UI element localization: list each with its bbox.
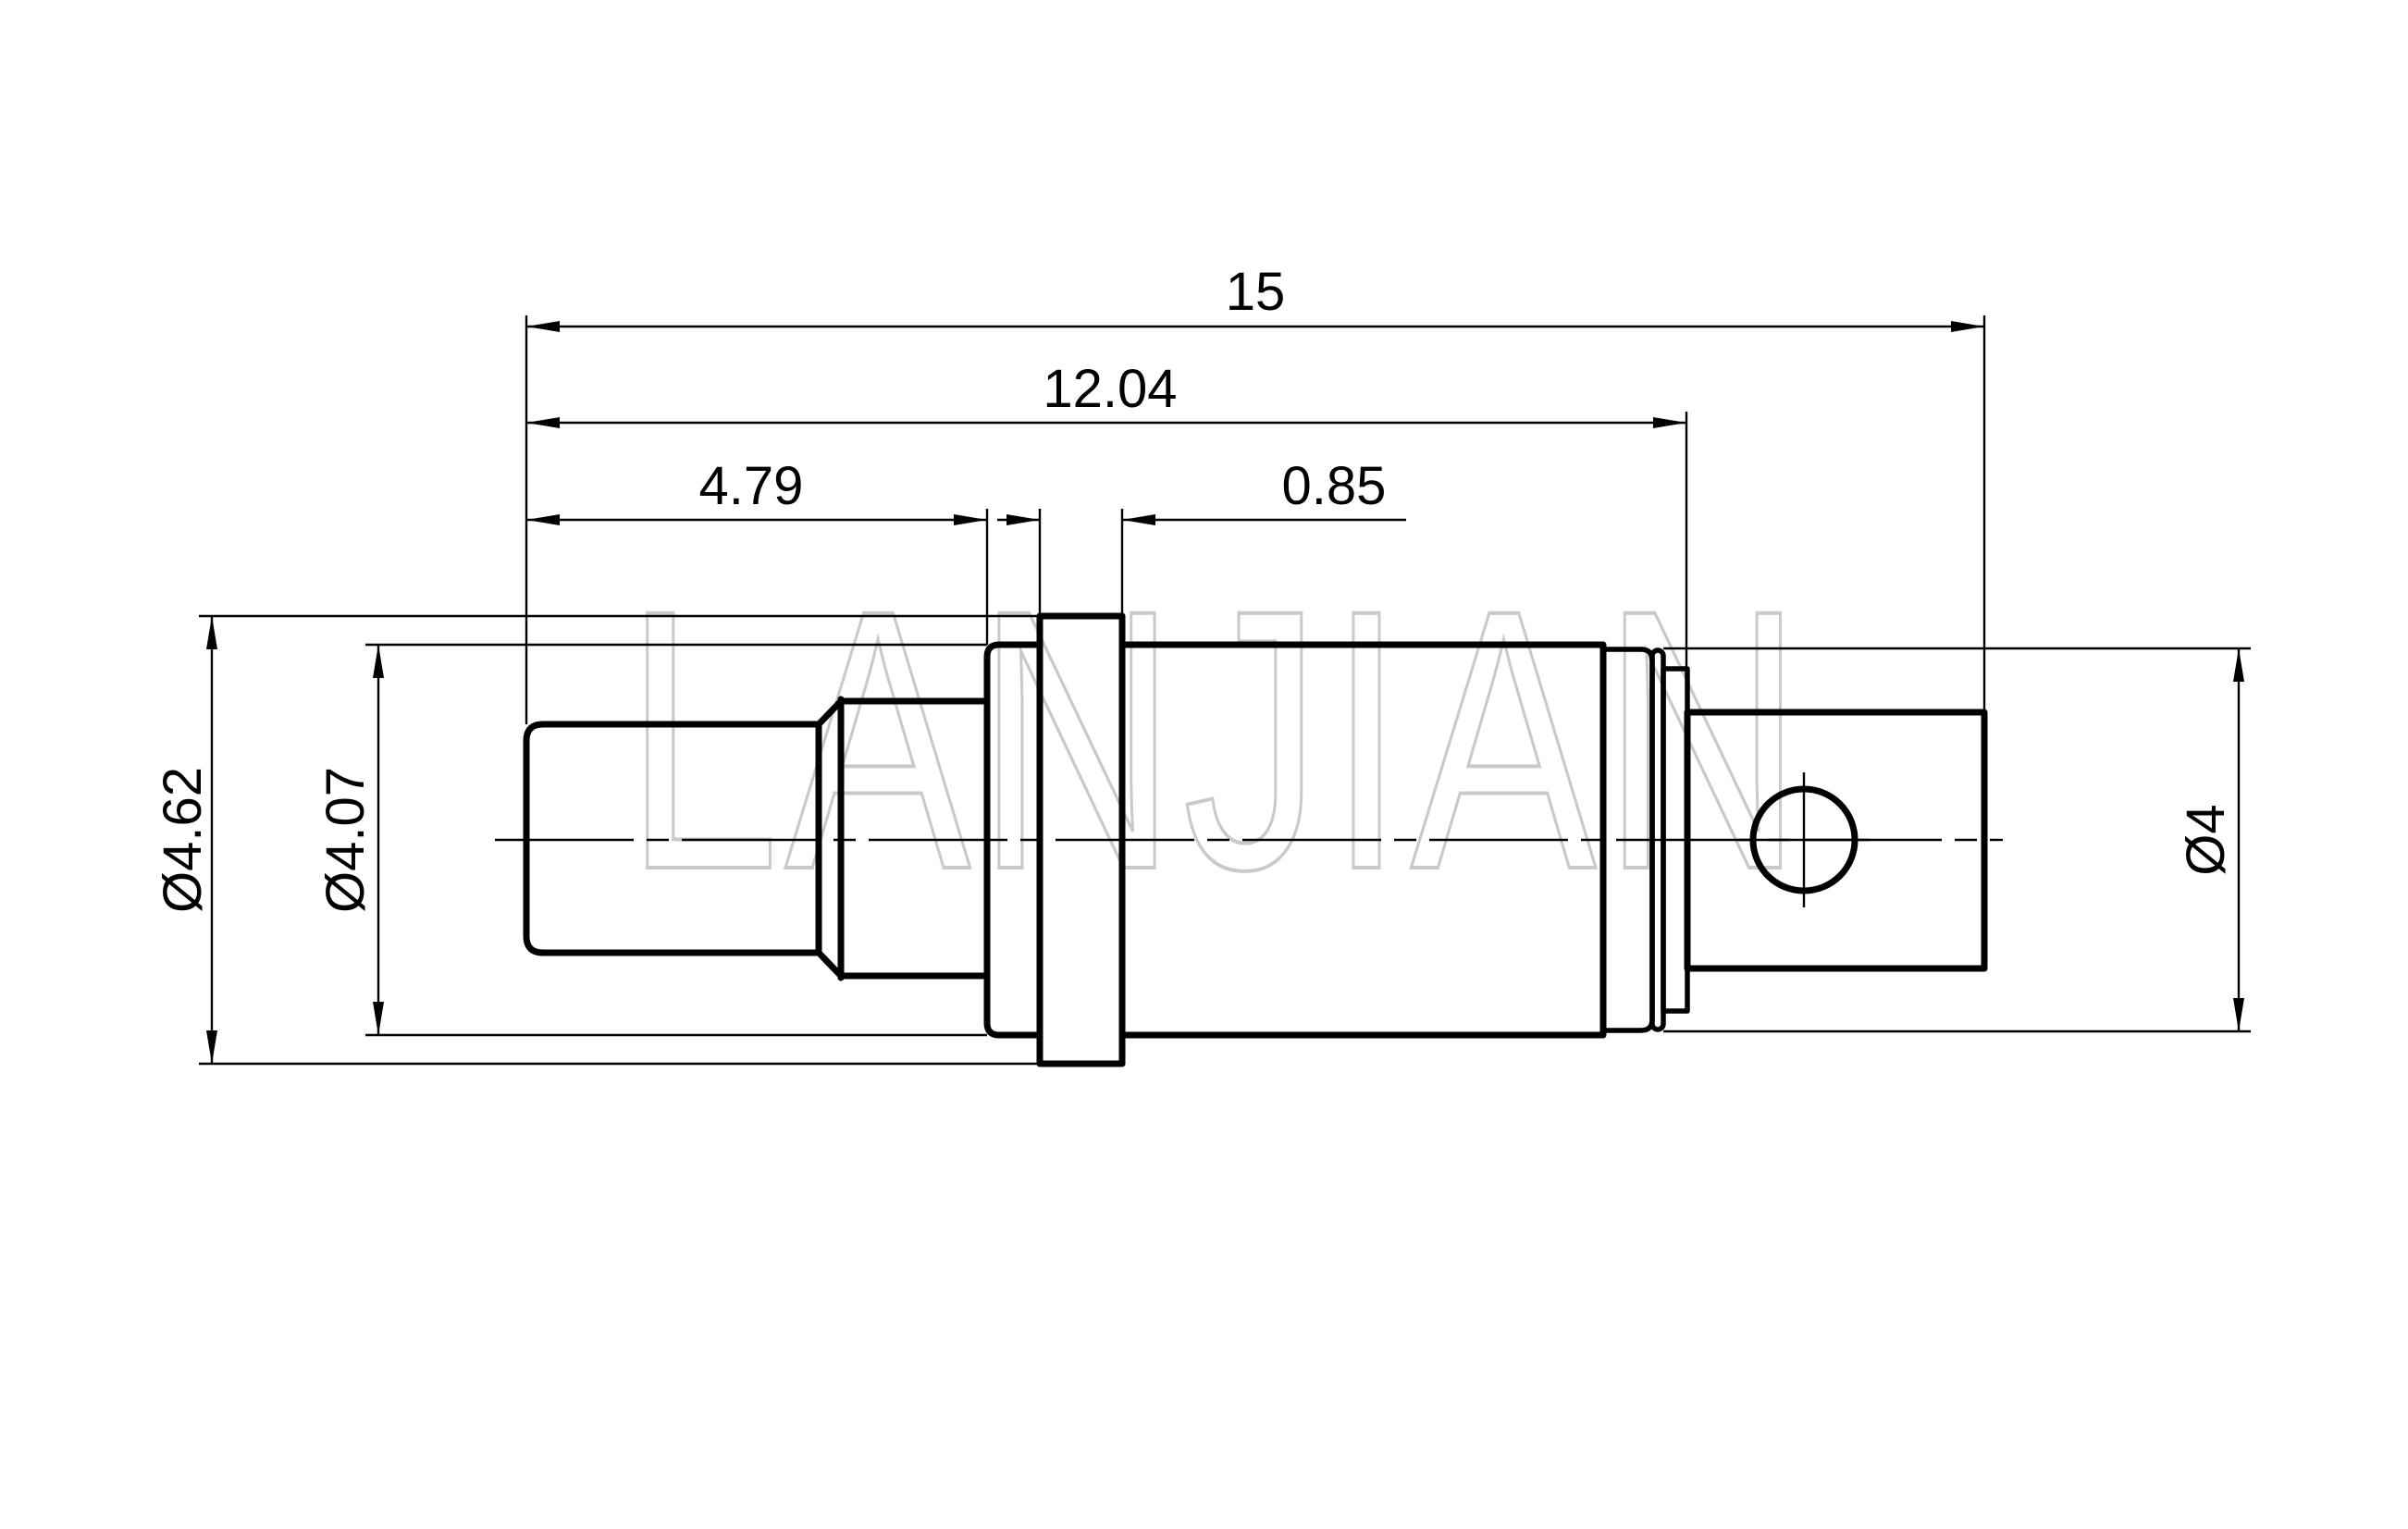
drawing-canvas: LANJIAN xyxy=(0,0,2408,1529)
arrowhead xyxy=(1951,321,1984,332)
arrowhead xyxy=(1006,514,1040,525)
arrowhead xyxy=(206,1030,217,1064)
dim-flange-diameter-label: Ø4.62 xyxy=(153,767,213,913)
dim-overall-length-label: 15 xyxy=(1226,262,1286,322)
technical-drawing: LANJIAN xyxy=(0,0,2408,1529)
arrowhead xyxy=(206,616,217,649)
dim-body-length-label: 12.04 xyxy=(1043,359,1177,419)
arrowhead xyxy=(373,645,384,678)
arrowhead xyxy=(526,321,560,332)
dim-barrel-diameter-label: Ø4.07 xyxy=(315,767,376,913)
arrowhead xyxy=(526,514,560,525)
arrowhead xyxy=(526,417,560,428)
dim-flange-width-label: 0.85 xyxy=(1282,456,1387,516)
arrowhead xyxy=(1653,417,1686,428)
watermark-text: LANJIAN xyxy=(624,533,1809,946)
arrowhead xyxy=(2233,998,2244,1031)
arrowhead xyxy=(2233,648,2244,682)
arrowhead xyxy=(954,514,987,525)
dim-front-length-label: 4.79 xyxy=(699,456,804,516)
arrowhead xyxy=(1122,514,1155,525)
arrowhead xyxy=(373,1002,384,1035)
dim-ring-diameter-label: Ø4 xyxy=(2176,804,2236,875)
